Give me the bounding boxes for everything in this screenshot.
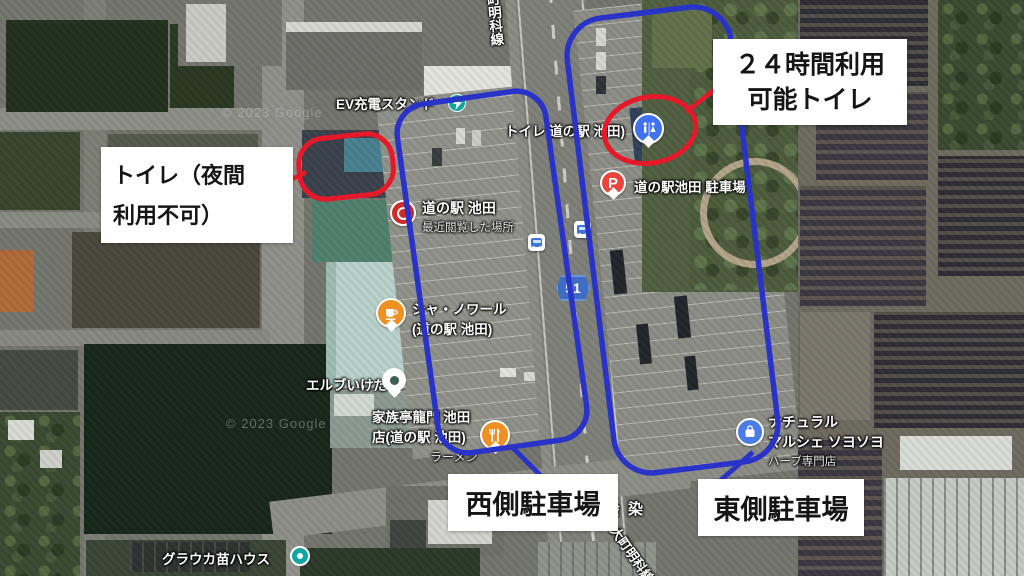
terrain-crop-rows [800, 186, 926, 306]
terrain-building [40, 450, 62, 468]
callout-toilet-24h-line1: ２４時間利用 [713, 48, 907, 83]
poi-label-marche-line2: マルシェ ソヨソヨ [768, 434, 884, 450]
poi-label-restaurant[interactable]: 家族亭龍門 池田 店(道の駅 池田) [372, 406, 470, 446]
callout-toilet-night-line2: 利用不可） [113, 196, 281, 236]
callout-toilet-night: トイレ（夜間 利用不可） [101, 147, 293, 243]
poi-label-restaurant-line2: 店(道の駅 池田) [372, 430, 466, 445]
poi-label-ev-station[interactable]: EV充電スタンド [336, 93, 435, 113]
terrain-car [596, 76, 606, 94]
terrain-car [432, 148, 442, 166]
ev-charger-icon[interactable] [448, 94, 466, 112]
callout-east-parking: 東側駐車場 [698, 479, 864, 536]
terrain-building [0, 250, 34, 312]
google-watermark: © 2023 Google [226, 416, 327, 431]
restroom-icon[interactable] [633, 113, 664, 144]
place-pin-icon[interactable] [382, 368, 406, 392]
place-dot-center [297, 553, 303, 559]
poi-label-marche[interactable]: ナチュラル マルシェ ソヨソヨ ハーブ専門店 [768, 412, 884, 469]
poi-label-cafe[interactable]: シャ・ノワール (道の駅 池田) [412, 298, 507, 338]
terrain-trees [938, 0, 1024, 150]
poi-label-toilet[interactable]: トイレ 道の駅 池田) [505, 120, 625, 140]
terrain-field [0, 132, 80, 210]
shopping-icon[interactable] [736, 418, 764, 446]
poi-label-restaurant-sub: ラーメン [430, 448, 478, 465]
terrain-field [0, 350, 78, 410]
terrain-greenhouse [884, 478, 1024, 576]
terrain-car [596, 52, 606, 70]
poi-label-michinoeki-title: 道の駅 池田 [422, 200, 496, 216]
terrain-car [456, 128, 465, 144]
poi-label-marche-sub: ハーブ専門店 [768, 453, 884, 469]
poi-label-michinoeki-sub: 最近閲覧した場所 [422, 219, 514, 235]
poi-label-restaurant-line1: 家族亭龍門 池田 [372, 410, 470, 425]
callout-toilet-night-line1: トイレ（夜間 [113, 156, 281, 196]
callout-west-parking: 西側駐車場 [448, 474, 618, 531]
place-dot-icon[interactable] [290, 546, 310, 566]
poi-label-herb-shop[interactable]: エルブいけだ [306, 374, 387, 394]
bus-stop-icon[interactable] [574, 221, 591, 238]
terrain-building [8, 420, 34, 440]
recently-viewed-icon-ring [397, 207, 410, 220]
poi-label-parking[interactable]: 道の駅池田 駐車場 [634, 176, 746, 196]
terrain-crop-rows [938, 156, 1024, 276]
terrain-car [472, 130, 481, 146]
terrain-field [300, 548, 480, 576]
callout-toilet-24h-line2: 可能トイレ [713, 83, 907, 118]
terrain-field [72, 232, 260, 328]
terrain-building [334, 394, 374, 416]
poi-label-marche-line1: ナチュラル [768, 414, 838, 430]
satellite-map[interactable]: © 2023 Google © 2023 Google 町明科線 EV充電スタン… [0, 0, 1024, 576]
bus-glyph [531, 238, 542, 247]
terrain-building [326, 262, 336, 388]
terrain-crop-rows [874, 312, 1024, 428]
terrain-car [500, 368, 516, 377]
bus-stop-icon[interactable] [528, 234, 545, 251]
terrain-path-ring [700, 158, 810, 268]
terrain-building [286, 22, 422, 90]
terrain-car [596, 28, 606, 46]
bus-glyph [577, 225, 588, 234]
terrain-building [900, 436, 1012, 470]
poi-label-cafe-line1: シャ・ノワール [412, 302, 507, 317]
terrain-field [800, 312, 870, 420]
terrain-garden [652, 8, 712, 68]
place-pin-dot [390, 376, 399, 385]
terrain-field [6, 20, 168, 112]
poi-label-cafe-line2: (道の駅 池田) [412, 322, 492, 337]
restaurant-icon[interactable] [480, 420, 510, 450]
poi-label-michinoeki[interactable]: 道の駅 池田 最近閲覧した場所 [422, 198, 514, 235]
google-watermark: © 2023 Google [222, 105, 323, 120]
coffee-icon[interactable] [376, 298, 406, 328]
terrain-building [186, 4, 226, 62]
parking-icon[interactable]: P [600, 170, 626, 196]
route-51-shield: 51 [556, 275, 590, 301]
recently-viewed-icon[interactable] [390, 200, 416, 226]
poi-label-nursery[interactable]: グラウカ苗ハウス [162, 548, 270, 568]
terrain-building [286, 22, 422, 32]
callout-toilet-24h: ２４時間利用 可能トイレ [713, 39, 907, 125]
